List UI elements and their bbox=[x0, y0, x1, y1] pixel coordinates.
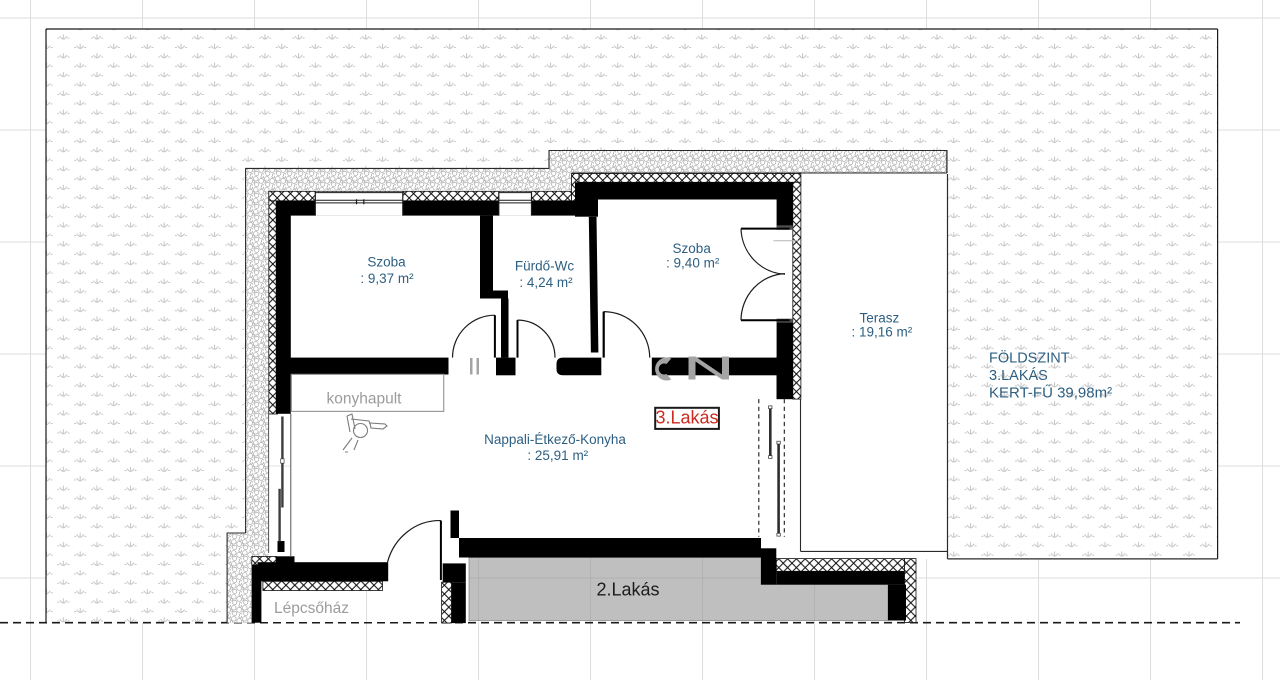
svg-text:2.Lakás: 2.Lakás bbox=[596, 580, 659, 600]
svg-text:KERT-FŰ 39,98m²: KERT-FŰ 39,98m² bbox=[989, 385, 1112, 402]
svg-text:konyhapult: konyhapult bbox=[327, 391, 403, 408]
svg-text:Szoba: Szoba bbox=[673, 241, 712, 256]
svg-text:: 25,91 m²: : 25,91 m² bbox=[527, 448, 588, 463]
svg-text:: 9,37 m²: : 9,37 m² bbox=[360, 271, 414, 286]
svg-text:3.LAKÁS: 3.LAKÁS bbox=[989, 367, 1048, 384]
svg-text:Szoba: Szoba bbox=[367, 255, 406, 270]
svg-text:Nappali-Étkező-Konyha: Nappali-Étkező-Konyha bbox=[484, 432, 626, 447]
svg-text:: 19,16 m²: : 19,16 m² bbox=[852, 325, 913, 340]
svg-text:3.Lakás: 3.Lakás bbox=[655, 408, 718, 428]
svg-text:Lépcsőház: Lépcsőház bbox=[274, 600, 349, 617]
svg-text:: 4,24 m²: : 4,24 m² bbox=[519, 275, 573, 290]
svg-text:Terasz: Terasz bbox=[860, 311, 900, 326]
svg-text:Fürdő-Wc: Fürdő-Wc bbox=[515, 259, 575, 274]
svg-text:: 9,40 m²: : 9,40 m² bbox=[666, 256, 720, 271]
svg-text:FÖLDSZINT: FÖLDSZINT bbox=[989, 349, 1070, 367]
